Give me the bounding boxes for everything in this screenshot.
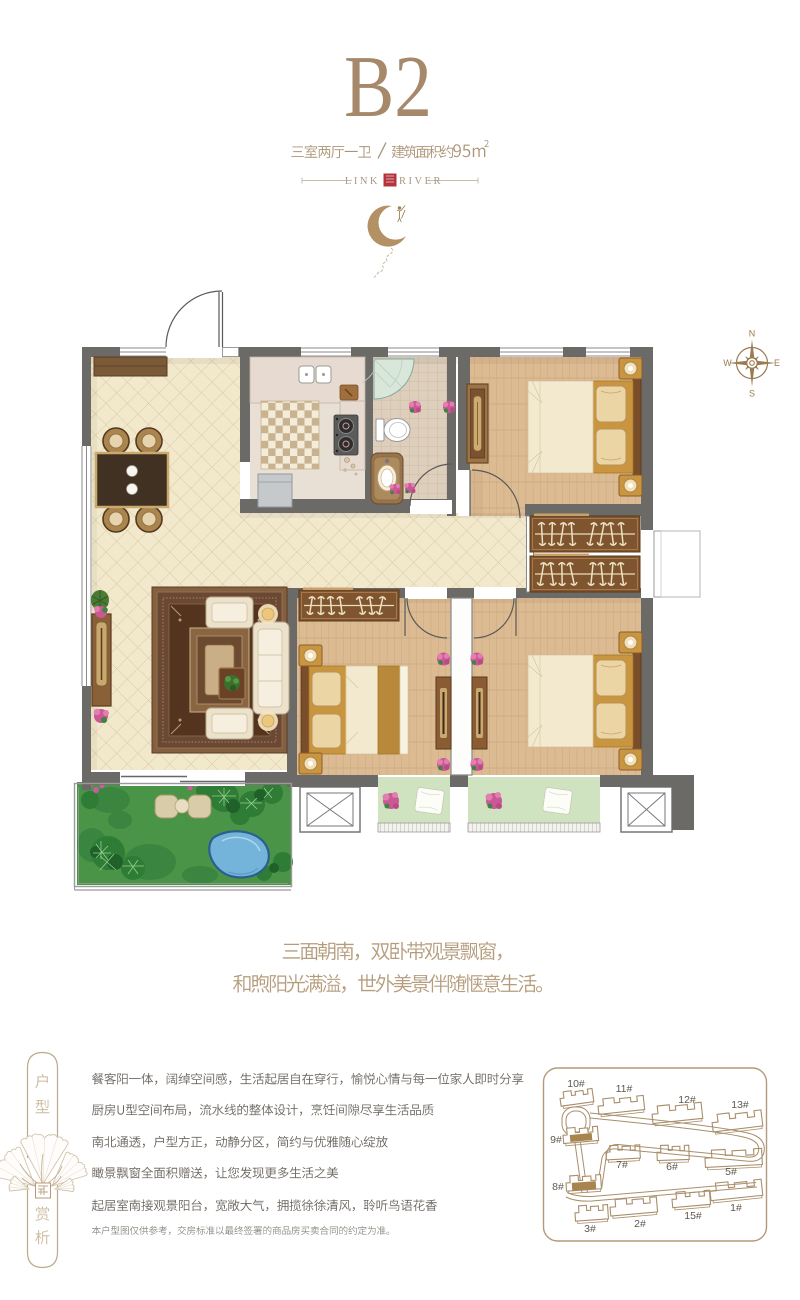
- svg-text:13#: 13#: [731, 1099, 749, 1111]
- svg-text:8#: 8#: [552, 1181, 564, 1193]
- svg-text:10#: 10#: [567, 1078, 585, 1090]
- svg-text:9#: 9#: [550, 1134, 562, 1146]
- svg-text:S: S: [749, 389, 755, 399]
- svg-text:7#: 7#: [616, 1159, 628, 1171]
- svg-text:LINK: LINK: [345, 176, 380, 187]
- svg-text:11#: 11#: [616, 1083, 633, 1095]
- svg-text:6#: 6#: [666, 1161, 678, 1173]
- svg-text:15#: 15#: [684, 1210, 702, 1222]
- svg-text:E: E: [774, 358, 780, 368]
- svg-text:1#: 1#: [730, 1202, 742, 1214]
- svg-text:N: N: [749, 329, 756, 339]
- svg-text:W: W: [723, 358, 732, 368]
- svg-text:3#: 3#: [584, 1223, 596, 1235]
- svg-text:RIVER: RIVER: [399, 176, 443, 187]
- svg-text:5#: 5#: [725, 1166, 737, 1178]
- svg-text:12#: 12#: [678, 1094, 696, 1106]
- svg-text:B2: B2: [344, 39, 432, 136]
- svg-text:2#: 2#: [634, 1218, 646, 1230]
